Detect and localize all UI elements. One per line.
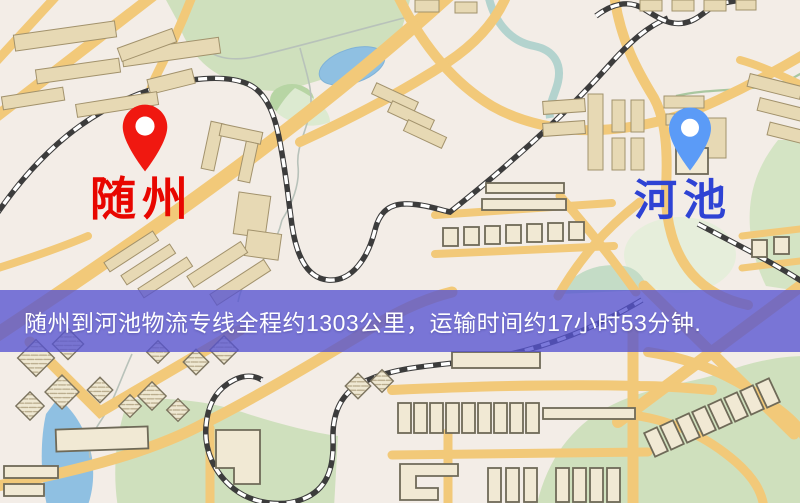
origin-pin-icon — [119, 103, 171, 173]
destination-pin-icon — [666, 106, 714, 172]
destination-label: 河池 — [634, 180, 732, 223]
logistics-route-map: 随州 河池 随州到河池物流专线全程约1303公里，运输时间约17小时53分钟. — [0, 0, 800, 503]
route-info-banner: 随州到河池物流专线全程约1303公里，运输时间约17小时53分钟. — [0, 290, 800, 352]
route-info-text: 随州到河池物流专线全程约1303公里，运输时间约17小时53分钟. — [24, 304, 701, 338]
map-background — [0, 0, 800, 503]
origin-label: 随州 — [90, 177, 194, 223]
